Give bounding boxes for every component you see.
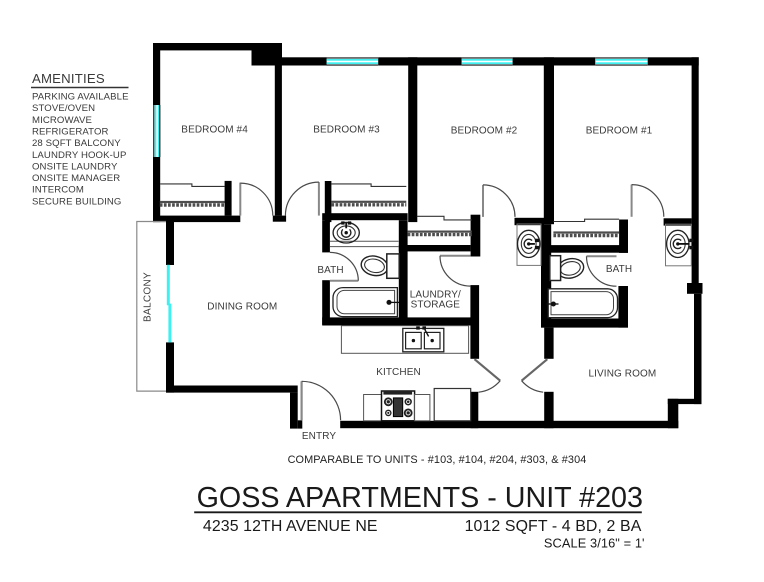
svg-text:STORAGE: STORAGE <box>411 300 461 311</box>
svg-text:ONSITE MANAGER: ONSITE MANAGER <box>32 173 120 184</box>
svg-text:BEDROOM #4: BEDROOM #4 <box>181 124 248 135</box>
svg-text:1012 SQFT - 4 BD, 2 BA: 1012 SQFT - 4 BD, 2 BA <box>465 518 642 535</box>
svg-text:KITCHEN: KITCHEN <box>376 367 421 378</box>
svg-text:AMENITIES: AMENITIES <box>32 71 105 86</box>
svg-text:LIVING ROOM: LIVING ROOM <box>589 368 657 379</box>
svg-text:LAUNDRY HOOK-UP: LAUNDRY HOOK-UP <box>32 150 126 161</box>
svg-text:REFRIGERATOR: REFRIGERATOR <box>32 126 109 137</box>
svg-text:SCALE 3/16" = 1': SCALE 3/16" = 1' <box>544 536 645 551</box>
svg-text:BATH: BATH <box>317 265 343 276</box>
svg-text:COMPARABLE TO UNITS - #103, #1: COMPARABLE TO UNITS - #103, #104, #204, … <box>288 454 587 466</box>
svg-text:SECURE BUILDING: SECURE BUILDING <box>32 196 121 207</box>
svg-text:DINING ROOM: DINING ROOM <box>207 302 277 313</box>
svg-text:PARKING AVAILABLE: PARKING AVAILABLE <box>32 92 129 103</box>
svg-text:INTERCOM: INTERCOM <box>32 185 84 196</box>
svg-text:BALCONY: BALCONY <box>143 272 154 322</box>
svg-text:BEDROOM #3: BEDROOM #3 <box>313 124 380 135</box>
svg-text:MICROWAVE: MICROWAVE <box>32 115 92 126</box>
svg-text:ONSITE LAUNDRY: ONSITE LAUNDRY <box>32 161 118 172</box>
svg-text:STOVE/OVEN: STOVE/OVEN <box>32 103 95 114</box>
svg-text:28 SQFT BALCONY: 28 SQFT BALCONY <box>32 138 121 149</box>
svg-text:ENTRY: ENTRY <box>302 431 336 442</box>
svg-text:BATH: BATH <box>606 264 632 275</box>
svg-text:4235 12TH AVENUE NE: 4235 12TH AVENUE NE <box>203 518 378 535</box>
svg-text:GOSS APARTMENTS - UNIT #203: GOSS APARTMENTS - UNIT #203 <box>197 482 643 514</box>
svg-text:BEDROOM #1: BEDROOM #1 <box>586 126 653 137</box>
svg-text:BEDROOM #2: BEDROOM #2 <box>451 126 518 137</box>
